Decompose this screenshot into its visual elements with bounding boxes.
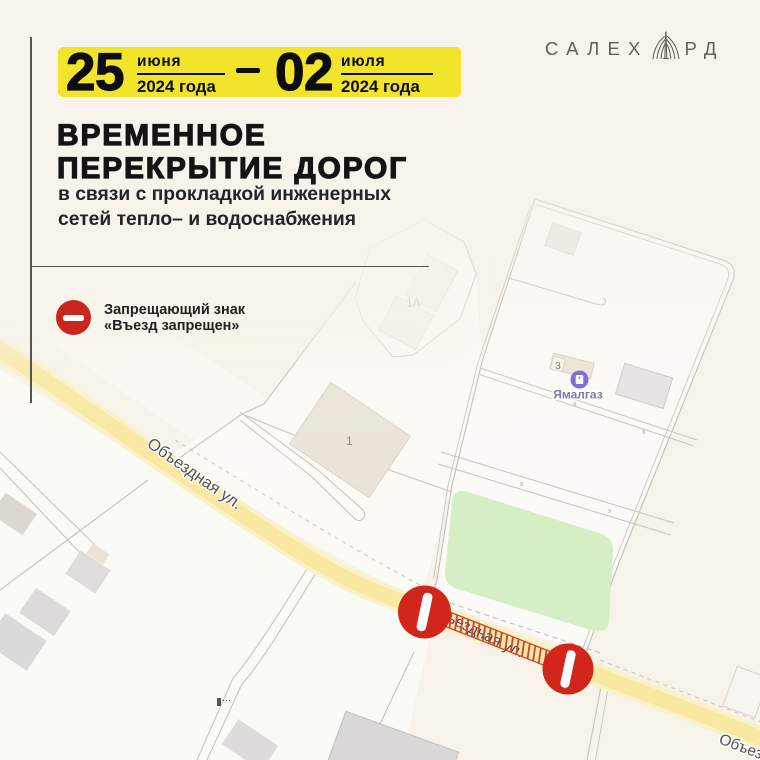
svg-text:х: х <box>520 481 524 488</box>
svg-text:х: х <box>608 508 612 515</box>
